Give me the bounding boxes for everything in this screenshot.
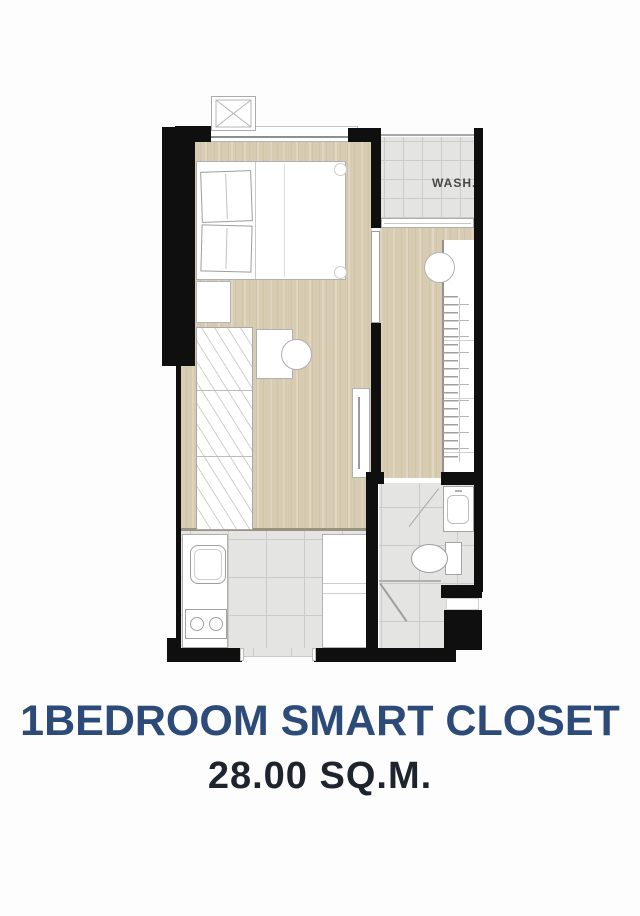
bed-post bbox=[334, 266, 347, 279]
floor-plan: WASH. 1BEDROOM SMART CLOSET 28.00 SQ.M. bbox=[0, 0, 640, 916]
burner bbox=[190, 617, 204, 631]
entrance-door-jamb bbox=[312, 648, 316, 661]
bed-post bbox=[334, 163, 347, 176]
pillow bbox=[200, 224, 252, 272]
wall-top-right bbox=[348, 128, 381, 142]
burner bbox=[209, 617, 223, 631]
kitchen-sink bbox=[190, 545, 226, 584]
wall-left-column bbox=[162, 127, 195, 366]
refrigerator-cabinet bbox=[322, 534, 368, 648]
wall-bottom-a bbox=[174, 648, 242, 662]
caption-block: 1BEDROOM SMART CLOSET 28.00 SQ.M. bbox=[0, 698, 640, 798]
bedroom-sliding-door bbox=[371, 231, 380, 323]
tv-screen-line bbox=[358, 397, 360, 469]
washbasin bbox=[443, 486, 474, 532]
toilet-bowl bbox=[411, 544, 448, 573]
wall-bath-top-left bbox=[366, 472, 384, 484]
tv-console bbox=[352, 388, 370, 478]
stove bbox=[185, 609, 227, 639]
shower-partition-line bbox=[379, 580, 441, 582]
clothes-hanger-marks bbox=[443, 296, 458, 464]
pillow bbox=[200, 170, 253, 223]
plan-title: 1BEDROOM SMART CLOSET bbox=[0, 698, 640, 745]
entrance-threshold bbox=[243, 648, 315, 657]
stool bbox=[424, 252, 455, 283]
hanger-rail bbox=[459, 298, 460, 462]
wall-left-thin bbox=[176, 366, 181, 650]
nightstand bbox=[196, 281, 231, 323]
bedroom-window bbox=[195, 136, 372, 142]
wall-bottom-b bbox=[314, 648, 456, 662]
wash-sliding-door bbox=[381, 218, 474, 228]
entrance-door-jamb bbox=[240, 648, 244, 661]
ac-condenser-x-icon bbox=[212, 97, 255, 130]
wall-mid-upper bbox=[371, 128, 381, 228]
wall-kitchen-bath bbox=[366, 472, 378, 650]
wall-mid-lower bbox=[371, 323, 381, 478]
desk-chair bbox=[281, 339, 312, 370]
wall-notch-bar bbox=[441, 585, 482, 598]
ac-condenser-unit bbox=[211, 96, 256, 131]
wardrobe bbox=[196, 327, 253, 530]
wash-vent-line bbox=[381, 134, 474, 137]
plan-area: 28.00 SQ.M. bbox=[0, 755, 640, 798]
service-slot-window bbox=[446, 598, 479, 610]
wash-room-label: WASH. bbox=[432, 176, 476, 190]
wall-right bbox=[474, 128, 483, 592]
wall-notch-block bbox=[444, 610, 482, 650]
duvet-fold-line bbox=[284, 164, 285, 277]
headboard-line bbox=[255, 162, 256, 279]
